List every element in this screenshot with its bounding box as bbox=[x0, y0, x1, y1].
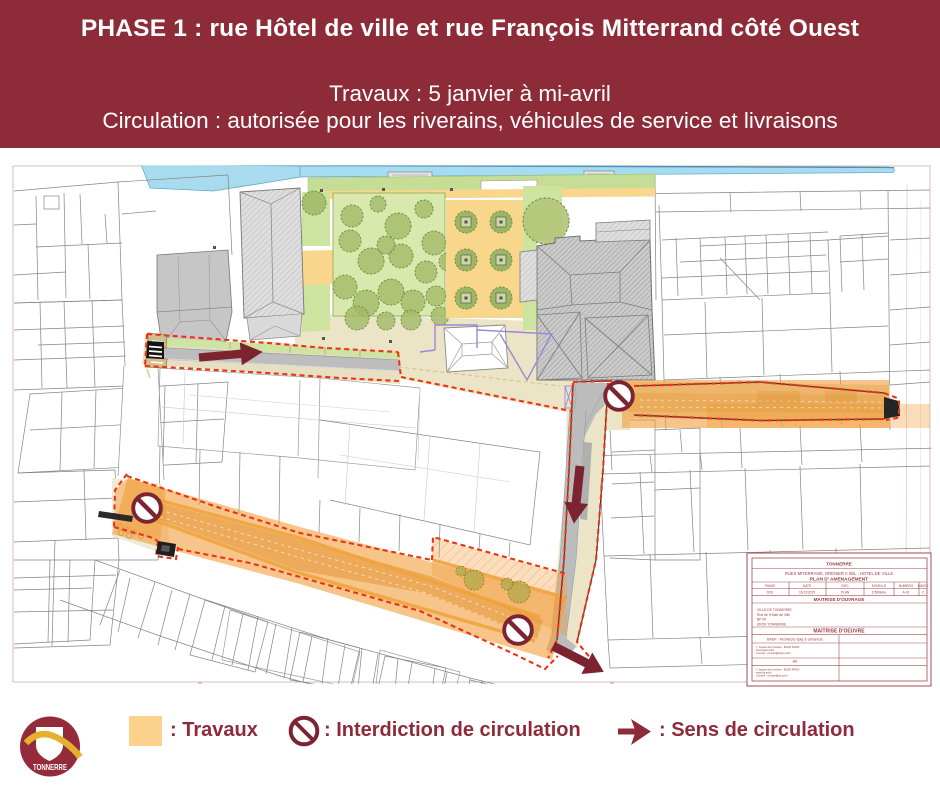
svg-text:INDICE: INDICE bbox=[918, 584, 929, 588]
svg-text:VILLE DE TONNERRE: VILLE DE TONNERRE bbox=[757, 608, 792, 612]
svg-text:TONNERRE: TONNERRE bbox=[33, 763, 67, 772]
svg-text:Rue de l'Hôtel de Ville: Rue de l'Hôtel de Ville bbox=[757, 613, 790, 617]
svg-text:TONNERRE: TONNERRE bbox=[826, 562, 852, 567]
svg-text:MAITRISE D'OEUVRE: MAITRISE D'OEUVRE bbox=[813, 629, 865, 635]
svg-text:PHASE: PHASE bbox=[765, 584, 776, 588]
svg-text:MAITRISE D'OUVRAGE: MAITRISE D'OUVRAGE bbox=[814, 597, 865, 602]
svg-text:1/500ème: 1/500ème bbox=[872, 591, 886, 595]
svg-text:DATE: DATE bbox=[803, 584, 811, 588]
svg-text:NUMERO: NUMERO bbox=[899, 584, 914, 588]
svg-text:RUES MITERRAND, GRENIER A SEL: RUES MITERRAND, GRENIER A SEL , HOTEL DE… bbox=[785, 571, 894, 576]
svg-text:89700 TONNERRE: 89700 TONNERRE bbox=[757, 622, 787, 626]
svg-text:ECHELLE: ECHELLE bbox=[872, 584, 887, 588]
svg-text:A-01: A-01 bbox=[903, 591, 910, 595]
svg-text:BASP - Architecte dplg & Urban: BASP - Architecte dplg & Urbaniste bbox=[767, 638, 823, 642]
svg-text:BA: BA bbox=[793, 660, 798, 664]
svg-text:Courriel : contact@ba.archi: Courriel : contact@ba.archi bbox=[756, 674, 788, 678]
svg-text:16/12/2025: 16/12/2025 bbox=[799, 591, 815, 595]
svg-text:Courriel : contact@basp.archi: Courriel : contact@basp.archi bbox=[756, 651, 791, 655]
svg-text:PLAN: PLAN bbox=[841, 591, 850, 595]
svg-text:DOC: DOC bbox=[841, 584, 849, 588]
svg-text:BP 90: BP 90 bbox=[757, 618, 766, 622]
svg-text:PLAN D' AMENAGEMENT: PLAN D' AMENAGEMENT bbox=[810, 577, 868, 583]
svg-text:DCE: DCE bbox=[767, 591, 774, 595]
